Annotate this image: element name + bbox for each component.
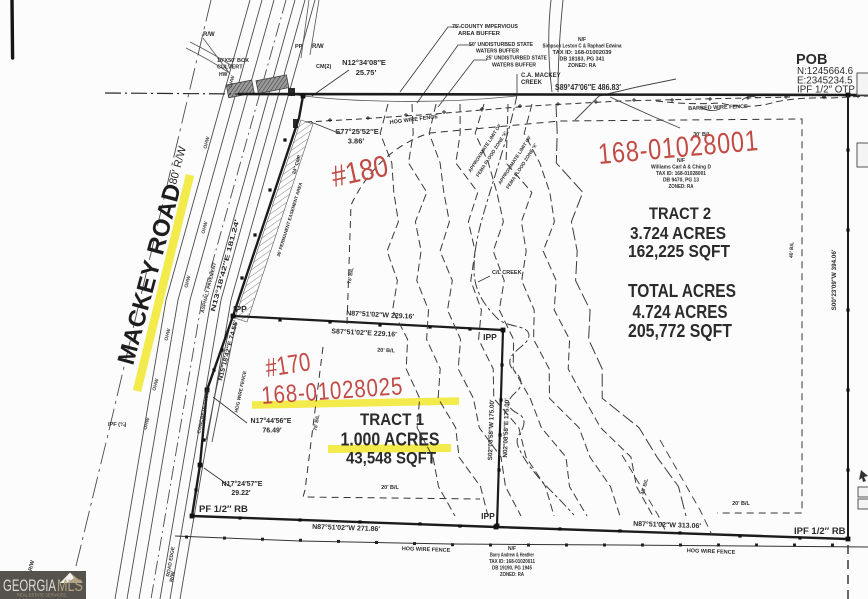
svg-text:3.86′: 3.86′ xyxy=(348,137,365,146)
svg-text:75' COUNTY IMPERVIOUS: 75' COUNTY IMPERVIOUS xyxy=(452,24,518,30)
svg-text:3.724 ACRES: 3.724 ACRES xyxy=(630,223,726,243)
svg-text:1.000 ACRES: 1.000 ACRES xyxy=(341,430,440,450)
svg-text:C.A. MACKEY: C.A. MACKEY xyxy=(521,73,561,79)
svg-text:TRACT 1: TRACT 1 xyxy=(360,411,424,429)
svg-text:N/F: N/F xyxy=(508,546,516,552)
svg-text:10'X50' BOX: 10'X50' BOX xyxy=(217,58,249,64)
svg-text:PF 1/2″ RB: PF 1/2″ RB xyxy=(199,504,248,515)
svg-text:40' B/L: 40' B/L xyxy=(789,242,796,258)
svg-text:TRACT 2: TRACT 2 xyxy=(649,204,711,223)
svg-text:25.75′: 25.75′ xyxy=(356,68,377,77)
svg-text:29.22′: 29.22′ xyxy=(231,490,251,497)
svg-text:TOTAL ACRES: TOTAL ACRES xyxy=(628,280,736,301)
svg-text:DB 19190, PG 1945: DB 19190, PG 1945 xyxy=(492,566,532,572)
svg-text:205,772 SQFT: 205,772 SQFT xyxy=(628,321,732,341)
svg-text:20' B/L: 20' B/L xyxy=(732,501,750,507)
svg-text:76.49′: 76.49′ xyxy=(262,428,282,435)
svg-text:ZONED: RA: ZONED: RA xyxy=(568,63,596,69)
svg-text:CULVERT: CULVERT xyxy=(217,65,243,71)
svg-text:TAX ID: 168-01028001: TAX ID: 168-01028001 xyxy=(656,171,706,177)
svg-text:S77°25′52″E: S77°25′52″E xyxy=(335,127,378,136)
svg-text:N12°34′08″E: N12°34′08″E xyxy=(342,58,386,67)
svg-text:25' UNDISTURBED STATE: 25' UNDISTURBED STATE xyxy=(486,56,547,62)
svg-text:WATERS BUFFER: WATERS BUFFER xyxy=(492,63,536,69)
svg-text:DB 18183, PG 341: DB 18183, PG 341 xyxy=(560,57,605,63)
svg-text:IPF (¾): IPF (¾) xyxy=(108,421,127,428)
svg-text:S89°47′06″E 486.83′: S89°47′06″E 486.83′ xyxy=(555,82,621,92)
svg-text:REAL ESTATE SERVICES: REAL ESTATE SERVICES xyxy=(17,593,66,598)
svg-text:Simpson Leston C & Raphael Edw: Simpson Leston C & Raphael Edwina xyxy=(543,44,622,50)
svg-text:IPF 1/2″ OTP: IPF 1/2″ OTP xyxy=(797,85,855,96)
svg-text:Barry Andrew & Heather: Barry Andrew & Heather xyxy=(490,553,534,559)
svg-text:CREEK: CREEK xyxy=(521,80,543,86)
svg-text:C/L CREEK: C/L CREEK xyxy=(492,270,522,276)
svg-text:162,225 SQFT: 162,225 SQFT xyxy=(628,241,730,261)
svg-text:N17°24′57″E: N17°24′57″E xyxy=(222,480,263,488)
svg-text:HW: HW xyxy=(219,72,228,78)
svg-text:4.724 ACRES: 4.724 ACRES xyxy=(633,302,728,322)
svg-text:TAX ID: 168-01002039: TAX ID: 168-01002039 xyxy=(553,50,612,56)
svg-text:50' UNDISTURBED STATE: 50' UNDISTURBED STATE xyxy=(469,42,533,48)
svg-text:IPP: IPP xyxy=(483,332,497,342)
svg-text:IPP: IPP xyxy=(233,304,247,314)
svg-text:WATERS BUFFER: WATERS BUFFER xyxy=(476,49,519,55)
svg-text:IPF 1/2″ RB: IPF 1/2″ RB xyxy=(794,526,846,537)
svg-text:ZONED: RA: ZONED: RA xyxy=(500,572,524,578)
svg-text:PP: PP xyxy=(295,44,303,50)
svg-text:ZONED: RA: ZONED: RA xyxy=(669,184,694,190)
svg-text:S00°23′09″W 394.06′: S00°23′09″W 394.06′ xyxy=(830,249,838,310)
svg-text:N17°44′56″E: N17°44′56″E xyxy=(251,417,292,425)
svg-text:20' B/L: 20' B/L xyxy=(381,485,399,491)
svg-text:AREA BUFFER: AREA BUFFER xyxy=(458,31,500,37)
svg-text:N/F: N/F xyxy=(578,37,586,43)
svg-text:43,548 SQFT: 43,548 SQFT xyxy=(346,449,437,468)
svg-text:20' B/L: 20' B/L xyxy=(377,348,396,355)
svg-text:TAX ID: 168-01020011: TAX ID: 168-01020011 xyxy=(489,559,535,565)
svg-text:IPP: IPP xyxy=(481,511,495,521)
svg-text:R/W: R/W xyxy=(203,32,215,38)
svg-text:CM(2): CM(2) xyxy=(316,64,331,70)
svg-text:DB 9470, PG 13: DB 9470, PG 13 xyxy=(663,178,699,184)
svg-text:R/W: R/W xyxy=(312,44,324,50)
